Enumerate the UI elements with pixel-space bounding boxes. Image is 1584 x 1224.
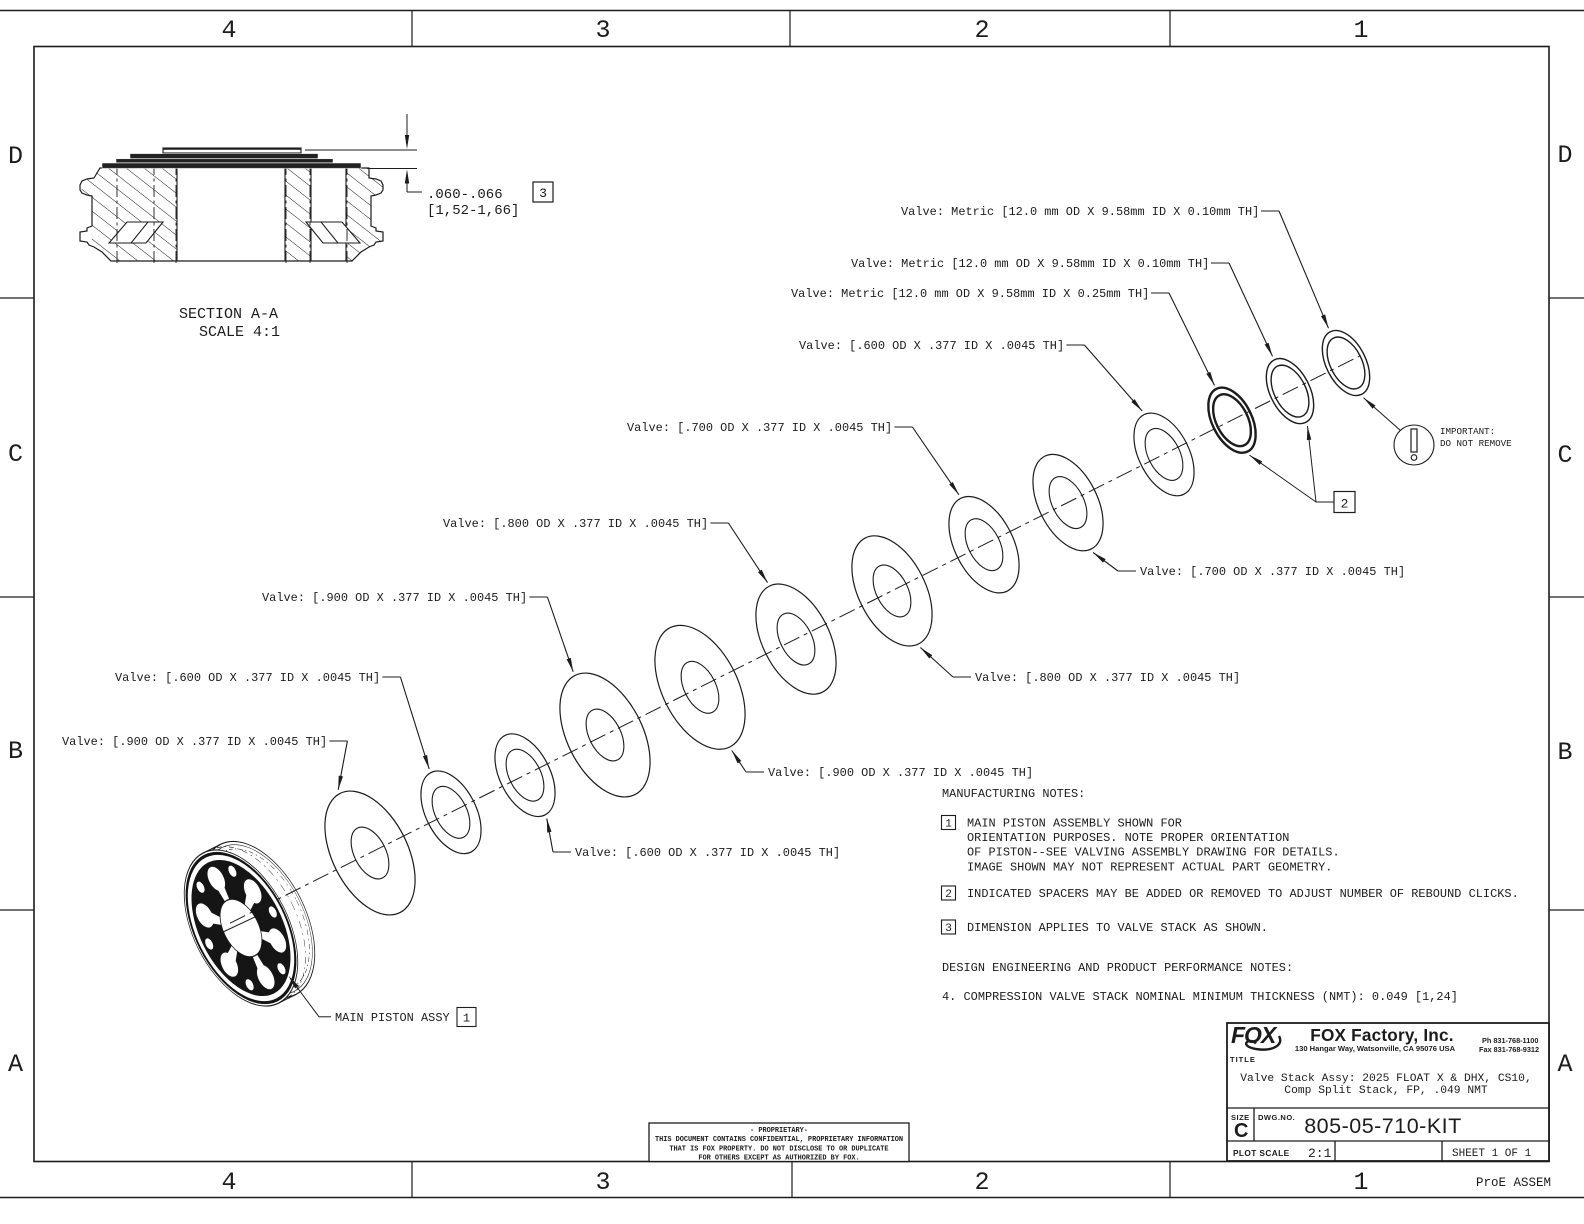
svg-text:Ph 831-768-1100: Ph 831-768-1100: [1482, 1036, 1538, 1045]
svg-text:4. COMPRESSION VALVE STACK NOM: 4. COMPRESSION VALVE STACK NOMINAL MINIM…: [942, 990, 1458, 1004]
svg-text:IMPORTANT:: IMPORTANT:: [1440, 426, 1495, 437]
svg-text:2: 2: [974, 1168, 989, 1197]
svg-text:C: C: [1234, 1120, 1248, 1142]
svg-text:Valve: [.900 OD X .377 ID X .0: Valve: [.900 OD X .377 ID X .0045 TH]: [262, 591, 527, 605]
svg-text:MAIN PISTON ASSEMBLY SHOWN FOR: MAIN PISTON ASSEMBLY SHOWN FOR: [967, 817, 1182, 831]
svg-text:Valve: Metric [12.0 mm OD X 9.: Valve: Metric [12.0 mm OD X 9.58mm ID X …: [851, 257, 1209, 271]
svg-text:Valve: Metric [12.0 mm OD X 9.: Valve: Metric [12.0 mm OD X 9.58mm ID X …: [791, 287, 1149, 301]
svg-text:.060-.066: .060-.066: [427, 187, 503, 203]
svg-text:INDICATED SPACERS MAY BE ADDED: INDICATED SPACERS MAY BE ADDED OR REMOVE…: [967, 887, 1519, 901]
svg-text:Comp Split Stack, FP, .049 NMT: Comp Split Stack, FP, .049 NMT: [1284, 1085, 1488, 1097]
svg-text:ProE ASSEM: ProE ASSEM: [1476, 1176, 1551, 1190]
svg-text:FOX Factory, Inc.: FOX Factory, Inc.: [1310, 1025, 1453, 1045]
svg-text:2: 2: [1341, 497, 1349, 512]
svg-text:1: 1: [463, 1012, 470, 1026]
svg-text:Valve: [.900 OD X .377 ID X .0: Valve: [.900 OD X .377 ID X .0045 TH]: [768, 766, 1033, 780]
svg-text:MAIN PISTON ASSY: MAIN PISTON ASSY: [335, 1011, 450, 1025]
svg-text:1: 1: [1353, 16, 1368, 45]
svg-text:A: A: [1557, 1050, 1572, 1079]
svg-text:PLOT SCALE: PLOT SCALE: [1233, 1148, 1290, 1158]
svg-text:THAT IS FOX PROPERTY. DO NOT: THAT IS FOX PROPERTY. DO NOT DISCLOSE TO…: [669, 1145, 888, 1153]
svg-text:[1,52-1,66]: [1,52-1,66]: [427, 203, 519, 219]
svg-text:2:1: 2:1: [1308, 1146, 1332, 1161]
svg-text:C: C: [1557, 441, 1572, 470]
svg-text:3: 3: [539, 186, 547, 201]
svg-text:Valve: [.600 OD X .377 ID X .0: Valve: [.600 OD X .377 ID X .0045 TH]: [799, 339, 1064, 353]
svg-text:MANUFACTURING NOTES:: MANUFACTURING NOTES:: [942, 787, 1085, 801]
svg-text:Valve: Metric [12.0 mm OD X 9.: Valve: Metric [12.0 mm OD X 9.58mm ID X …: [901, 205, 1259, 219]
svg-text:FOX: FOX: [1231, 1022, 1278, 1048]
svg-text:DESIGN ENGINEERING AND PRODUCT: DESIGN ENGINEERING AND PRODUCT PERFORMAN…: [942, 961, 1293, 975]
svg-text:THIS DOCUMENT CONTAINS CONFIDE: THIS DOCUMENT CONTAINS CONFIDENTIAL, PRO…: [655, 1136, 903, 1144]
svg-text:805-05-710-KIT: 805-05-710-KIT: [1304, 1114, 1462, 1138]
svg-text:TITLE: TITLE: [1230, 1055, 1256, 1064]
svg-text:Valve: [.700 OD X .377 ID X .0: Valve: [.700 OD X .377 ID X .0045 TH]: [1140, 565, 1405, 579]
svg-text:3: 3: [595, 16, 610, 45]
svg-text:2: 2: [945, 889, 952, 901]
svg-text:4: 4: [221, 16, 236, 45]
svg-text:Valve: [.600 OD X .377 ID X .0: Valve: [.600 OD X .377 ID X .0045 TH]: [575, 846, 840, 860]
svg-text:- PROPRIETARY-: - PROPRIETARY-: [750, 1127, 808, 1135]
svg-text:FOR OTHERS EXCEPT AS AUTHORIZE: FOR OTHERS EXCEPT AS AUTHORIZED BY FOX.: [698, 1155, 859, 1163]
svg-text:ORIENTATION PURPOSES. NOTE PRO: ORIENTATION PURPOSES. NOTE PROPER ORIENT…: [967, 831, 1289, 845]
svg-text:1: 1: [1353, 1168, 1368, 1197]
svg-text:Valve: [.700 OD X .377 ID X .0: Valve: [.700 OD X .377 ID X .0045 TH]: [627, 421, 892, 435]
svg-text:Valve: [.900 OD X .377 ID X .0: Valve: [.900 OD X .377 ID X .0045 TH]: [62, 735, 327, 749]
svg-text:DWG.NO.: DWG.NO.: [1258, 1113, 1295, 1122]
svg-text:2: 2: [974, 16, 989, 45]
svg-text:3: 3: [945, 923, 952, 935]
svg-text:Valve Stack Assy: 2025 FLOAT X: Valve Stack Assy: 2025 FLOAT X & DHX, CS…: [1240, 1073, 1532, 1085]
svg-text:Valve: [.800 OD X .377 ID X .0: Valve: [.800 OD X .377 ID X .0045 TH]: [975, 671, 1240, 685]
svg-text:SECTION A-A: SECTION A-A: [179, 306, 278, 323]
svg-text:DIMENSION APPLIES TO VALVE STA: DIMENSION APPLIES TO VALVE STACK AS SHOW…: [967, 921, 1268, 935]
svg-text:130 Hangar Way, Watsonville, C: 130 Hangar Way, Watsonville, CA 95076 US…: [1295, 1044, 1456, 1053]
svg-text:4: 4: [221, 1168, 236, 1197]
svg-text:Fax 831-768-9312: Fax 831-768-9312: [1479, 1045, 1539, 1054]
svg-text:B: B: [8, 737, 23, 766]
svg-text:SCALE 4:1: SCALE 4:1: [199, 324, 280, 341]
svg-text:1: 1: [945, 819, 952, 831]
svg-text:3: 3: [595, 1168, 610, 1197]
svg-text:B: B: [1557, 738, 1572, 767]
svg-text:Valve: [.600 OD X .377 ID X .0: Valve: [.600 OD X .377 ID X .0045 TH]: [115, 671, 380, 685]
svg-text:D: D: [8, 142, 23, 171]
svg-text:D: D: [1557, 141, 1572, 170]
svg-text:DO NOT REMOVE: DO NOT REMOVE: [1440, 438, 1512, 449]
svg-text:SHEET 1 OF 1: SHEET 1 OF 1: [1452, 1148, 1532, 1160]
svg-text:OF PISTON--SEE VALVING ASSEMBL: OF PISTON--SEE VALVING ASSEMBLY DRAWING …: [967, 846, 1340, 860]
svg-text:Valve: [.800 OD X .377 ID X .0: Valve: [.800 OD X .377 ID X .0045 TH]: [443, 517, 708, 531]
svg-text:IMAGE SHOWN MAY NOT REPRESENT: IMAGE SHOWN MAY NOT REPRESENT ACTUAL PAR…: [967, 860, 1332, 874]
svg-text:A: A: [8, 1050, 23, 1079]
svg-text:C: C: [8, 440, 23, 469]
